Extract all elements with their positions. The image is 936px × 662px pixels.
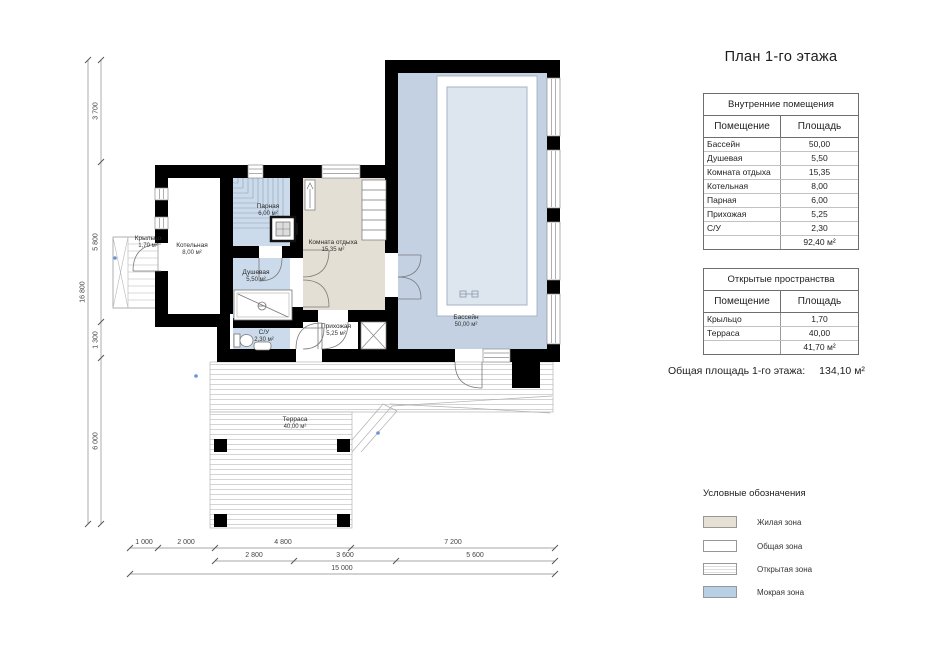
legend-swatch-living: [703, 516, 737, 528]
table-row: Терраса40,00: [704, 327, 858, 341]
terrace-deck-lower: [210, 412, 352, 528]
room-name: Парная: [257, 203, 280, 211]
window: [547, 150, 560, 208]
col-header-room: Помещение: [704, 116, 781, 137]
dim-label-bottom: 2 000: [177, 539, 195, 546]
wall-segment: [358, 322, 361, 349]
wall-segment: [547, 280, 560, 294]
legend-item-living: Жилая зона: [703, 516, 801, 528]
cell-room: Парная: [704, 194, 781, 207]
room-name: С/У: [254, 329, 273, 337]
wall-segment: [547, 136, 560, 150]
wall-segment: [220, 178, 233, 314]
wall-segment: [510, 349, 560, 362]
open-spaces-table: Открытые пространства Помещение Площадь …: [703, 268, 859, 355]
table-row: С/У2,30: [704, 222, 858, 236]
summary-label: Общая площадь 1-го этажа:: [668, 365, 805, 377]
dim-label-bottom-total: 15 000: [331, 565, 352, 572]
cell-area: 5,50: [781, 152, 858, 165]
col-header-area: Площадь: [781, 291, 858, 312]
dim-label-bottom: 2 800: [245, 552, 263, 559]
table-title: Открытые пространства: [704, 269, 858, 291]
table-header: Помещение Площадь: [704, 291, 858, 313]
cell-room: Котельная: [704, 180, 781, 193]
pool-basin: [447, 87, 527, 305]
cell-area: 8,00: [781, 180, 858, 193]
cell-room: Комната отдыха: [704, 166, 781, 179]
room-label-porch: Крыльцо 1,70 м²: [135, 235, 162, 251]
wall-segment: [348, 310, 398, 322]
window: [547, 78, 560, 136]
wall-segment: [385, 60, 560, 73]
entry-marker: [113, 256, 117, 260]
room-name: Котельная: [176, 242, 207, 250]
cell-area: 6,00: [781, 194, 858, 207]
cell-area: 15,35: [781, 166, 858, 179]
wall-segment: [155, 165, 168, 188]
legend-title: Условные обозначения: [703, 488, 806, 499]
cell-room: Прихожая: [704, 208, 781, 221]
room-name: Крыльцо: [135, 235, 162, 243]
terrace-post: [337, 439, 350, 452]
window: [483, 349, 510, 362]
cell-room: Душевая: [704, 152, 781, 165]
wall-segment: [217, 349, 296, 362]
room-label-wc: С/У 2,30 м²: [254, 329, 273, 345]
legend-swatch-wet: [703, 586, 737, 598]
cell-area: 2,30: [781, 222, 858, 235]
wall-segment: [233, 246, 259, 258]
room-name: Прихожая: [321, 323, 351, 331]
legend-label: Общая зона: [757, 542, 802, 551]
room-label-shower: Душевая 5,50 м²: [242, 269, 269, 285]
wardrobe: [361, 322, 386, 349]
room-label-hall: Прихожая 5,25 м²: [321, 323, 351, 339]
bathtub: [234, 290, 292, 320]
terrace: [194, 362, 553, 528]
dim-label-bottom: 5 600: [466, 552, 484, 559]
window: [155, 188, 168, 200]
wall-segment: [360, 165, 398, 178]
legend-label: Открытая зона: [757, 565, 812, 574]
room-label-pool: Бассейн 50,00 м²: [453, 314, 478, 330]
wall-segment: [547, 208, 560, 222]
table-row: Прихожая5,25: [704, 208, 858, 222]
stairs-marker: [305, 180, 315, 210]
wall-segment: [547, 60, 560, 78]
table-row: Бассейн50,00: [704, 138, 858, 152]
total-area-summary: Общая площадь 1-го этажа: 134,10 м²: [668, 365, 865, 377]
table-total-row: 92,40 м²: [704, 236, 858, 249]
cell-room: Бассейн: [704, 138, 781, 151]
room-name: Терраса: [283, 416, 308, 424]
legend-swatch-common: [703, 540, 737, 552]
col-header-area: Площадь: [781, 116, 858, 137]
table-title: Внутренние помещения: [704, 94, 858, 116]
dim-label-left-seg: 5 800: [93, 233, 100, 251]
cell-room: Крыльцо: [704, 313, 781, 326]
room-area: 15,35 м²: [309, 247, 358, 255]
stove-icon: [271, 217, 298, 241]
legend-item-common: Общая зона: [703, 540, 802, 552]
room-area: 6,00 м²: [257, 211, 280, 219]
dim-label-bottom: 7 200: [444, 539, 462, 546]
dim-label-left-total: 16 800: [80, 281, 87, 302]
room-label-sauna: Парная 6,00 м²: [257, 203, 280, 219]
cell-room: С/У: [704, 222, 781, 235]
wall-segment: [303, 310, 318, 322]
terrace-deck-upper: [210, 362, 553, 412]
window: [155, 217, 168, 229]
room-area: 40,00 м²: [283, 424, 308, 432]
entry-marker: [376, 431, 380, 435]
table-row: Душевая5,50: [704, 152, 858, 166]
dim-label-bottom: 4 800: [274, 539, 292, 546]
wall-segment: [322, 349, 398, 362]
cell-area: 50,00: [781, 138, 858, 151]
legend-item-wet: Мокрая зона: [703, 586, 804, 598]
entry-marker: [194, 374, 198, 378]
window: [322, 165, 360, 178]
terrace-post: [337, 514, 350, 527]
table-header: Помещение Площадь: [704, 116, 858, 138]
table-row: Крыльцо1,70: [704, 313, 858, 327]
wall-segment: [263, 165, 322, 178]
internal-rooms-table: Внутренние помещения Помещение Площадь Б…: [703, 93, 859, 250]
floor-plan-page: Бассейн 50,00 м² Комната отдыха 15,35 м²…: [0, 0, 936, 662]
room-area: 8,00 м²: [176, 250, 207, 258]
window: [547, 222, 560, 280]
wall-segment: [385, 73, 398, 253]
cell-area: 1,70: [781, 313, 858, 326]
room-label-boiler: Котельная 8,00 м²: [176, 242, 207, 258]
room-area: 5,50 м²: [242, 277, 269, 285]
dim-label-left-seg: 3 700: [93, 102, 100, 120]
terrace-post: [214, 439, 227, 452]
col-header-room: Помещение: [704, 291, 781, 312]
legend-label: Жилая зона: [757, 518, 801, 527]
dim-label-bottom: 3 600: [336, 552, 354, 559]
sofa: [362, 180, 386, 240]
dim-label-left-seg: 1 300: [93, 331, 100, 349]
table-total-value: 41,70 м²: [781, 341, 858, 354]
legend-label: Мокрая зона: [757, 588, 804, 597]
toilet: [234, 334, 253, 347]
table-row: Парная6,00: [704, 194, 858, 208]
window: [547, 294, 560, 344]
terrace-post: [214, 514, 227, 527]
table-total-row: 41,70 м²: [704, 341, 858, 354]
legend-swatch-open: [703, 563, 737, 575]
table-row: Комната отдыха15,35: [704, 166, 858, 180]
dim-label-left-seg: 6 000: [93, 432, 100, 450]
room-label-terrace: Терраса 40,00 м²: [283, 416, 308, 432]
legend-item-open: Открытая зона: [703, 563, 812, 575]
cell-room: Терраса: [704, 327, 781, 340]
table-total-value: 92,40 м²: [781, 236, 858, 249]
window: [248, 165, 263, 178]
room-area: 5,25 м²: [321, 331, 351, 339]
page-title: План 1-го этажа: [703, 49, 859, 65]
room-area: 50,00 м²: [453, 322, 478, 330]
cell-area: 40,00: [781, 327, 858, 340]
room-label-lounge: Комната отдыха 15,35 м²: [309, 239, 358, 255]
wall-segment: [512, 362, 540, 388]
wall-segment: [155, 165, 248, 178]
wall-segment: [155, 200, 168, 217]
room-name: Бассейн: [453, 314, 478, 322]
summary-value: 134,10 м²: [819, 365, 865, 377]
table-row: Котельная8,00: [704, 180, 858, 194]
cell-area: 5,25: [781, 208, 858, 221]
room-area: 1,70 м²: [135, 243, 162, 251]
room-area: 2,30 м²: [254, 337, 273, 345]
room-name: Душевая: [242, 269, 269, 277]
pool: [437, 76, 537, 316]
room-name: Комната отдыха: [309, 239, 358, 247]
dim-label-bottom: 1 000: [135, 539, 153, 546]
